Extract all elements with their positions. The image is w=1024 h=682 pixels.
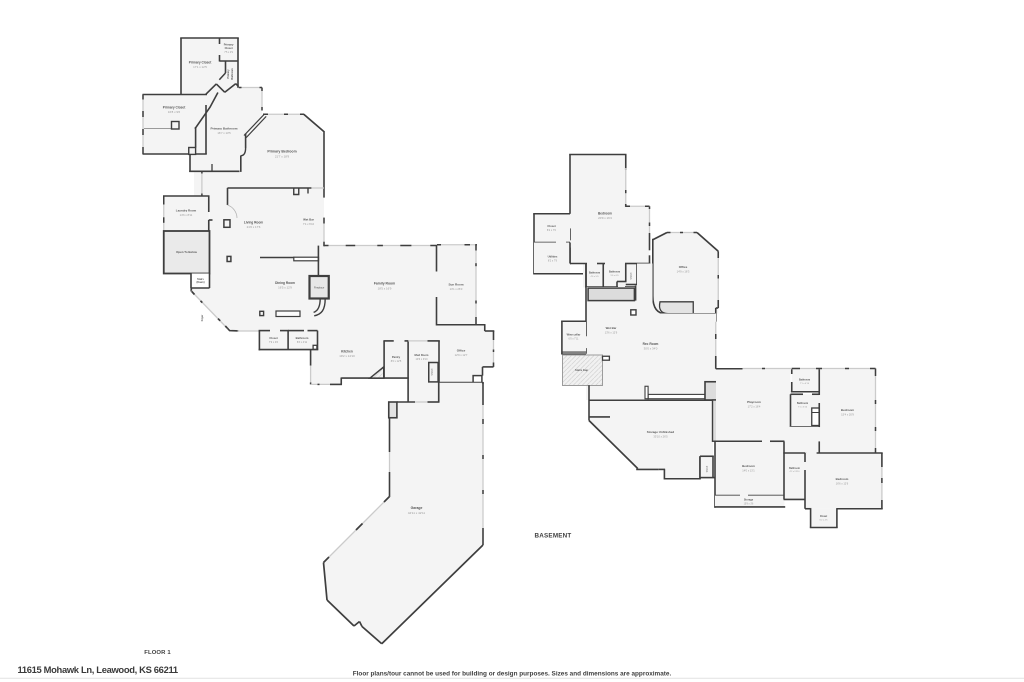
svg-text:7'4 x 6'10: 7'4 x 6'10 <box>303 222 315 226</box>
svg-text:Bathroom: Bathroom <box>797 402 808 405</box>
svg-text:Family Room: Family Room <box>374 282 395 286</box>
svg-text:Bedroom: Bedroom <box>841 408 855 412</box>
svg-text:44'11 x 42'11: 44'11 x 42'11 <box>408 511 426 515</box>
svg-text:21'7 x 18'9: 21'7 x 18'9 <box>275 154 290 158</box>
svg-text:7'1 x 4'10: 7'1 x 4'10 <box>800 383 810 385</box>
svg-text:Pantry: Pantry <box>392 355 401 359</box>
svg-text:11615 Mohawk Ln, Leawood, KS 6: 11615 Mohawk Ln, Leawood, KS 66211 <box>18 664 178 675</box>
svg-text:Bathroom: Bathroom <box>789 467 800 470</box>
svg-text:Bedroom: Bedroom <box>742 464 755 468</box>
svg-text:Floor plans/tour cannot be use: Floor plans/tour cannot be used for buil… <box>353 671 672 678</box>
svg-text:14'6 x 8'11: 14'6 x 8'11 <box>180 213 193 217</box>
svg-text:Wine cellar: Wine cellar <box>567 333 581 337</box>
svg-text:Living Room: Living Room <box>244 221 263 225</box>
svg-text:BASEMENT: BASEMENT <box>535 533 572 540</box>
svg-text:Bedroom: Bedroom <box>598 212 612 216</box>
svg-text:8'2 x 7'9: 8'2 x 7'9 <box>548 260 558 263</box>
svg-text:Dining Room: Dining Room <box>275 281 295 285</box>
svg-text:Bathroom: Bathroom <box>296 336 309 340</box>
svg-text:Wet Bar: Wet Bar <box>606 326 618 330</box>
svg-text:Office: Office <box>679 265 688 269</box>
svg-text:Primary: Primary <box>224 43 234 47</box>
svg-text:21'6 x 17'6: 21'6 x 17'6 <box>247 225 261 229</box>
svg-text:Primary Bedroom: Primary Bedroom <box>267 150 296 154</box>
svg-text:14'9 x 16'3: 14'9 x 16'3 <box>677 269 690 273</box>
svg-text:Rec Room: Rec Room <box>643 342 659 346</box>
svg-text:7'1 x 3'10: 7'1 x 3'10 <box>798 406 808 408</box>
svg-text:Kitchen: Kitchen <box>341 350 353 354</box>
svg-text:Closet: Closet <box>269 336 277 340</box>
svg-text:Closet: Closet <box>430 368 433 375</box>
svg-text:30'0 x 34'0: 30'0 x 34'0 <box>644 347 658 351</box>
svg-text:Bathroom: Bathroom <box>589 272 600 275</box>
svg-text:Sun Room: Sun Room <box>449 283 464 287</box>
svg-text:Playroom: Playroom <box>747 400 761 404</box>
svg-text:Bathroom: Bathroom <box>231 68 234 79</box>
svg-text:Garage: Garage <box>411 506 423 510</box>
svg-text:16'8 x 9'6: 16'8 x 9'6 <box>168 110 181 114</box>
svg-text:Bedroom: Bedroom <box>836 477 849 481</box>
svg-text:20'9 x 16'4: 20'9 x 16'4 <box>598 216 612 220</box>
svg-text:19'2 x 14'10: 19'2 x 14'10 <box>339 354 355 358</box>
svg-text:Stairs Gap: Stairs Gap <box>575 368 588 372</box>
svg-text:15'8 x 3'6: 15'8 x 3'6 <box>744 503 754 505</box>
svg-text:Office: Office <box>457 349 466 353</box>
svg-text:Storage: Storage <box>744 499 754 502</box>
svg-text:7'5 x 4'9: 7'5 x 4'9 <box>224 51 233 54</box>
svg-text:Laundry Room: Laundry Room <box>176 209 197 213</box>
svg-text:(Down): (Down) <box>196 281 204 284</box>
svg-text:4'2 x 13'10: 4'2 x 13'10 <box>790 471 801 473</box>
svg-text:8'0 x 12'5: 8'0 x 12'5 <box>391 360 402 363</box>
svg-text:Primary: Primary <box>227 69 230 79</box>
svg-text:Closet: Closet <box>225 46 233 50</box>
svg-text:Fireplace: Fireplace <box>314 286 325 289</box>
svg-text:10'6 x 9'10: 10'6 x 9'10 <box>416 358 429 361</box>
svg-text:FLOOR 1: FLOOR 1 <box>144 650 171 656</box>
svg-text:13'1 x 26'3: 13'1 x 26'3 <box>450 287 463 291</box>
svg-text:Mud Room: Mud Room <box>415 353 429 357</box>
svg-text:4'6 x 5'0: 4'6 x 5'0 <box>590 276 599 278</box>
svg-text:Bathroom: Bathroom <box>799 379 810 382</box>
svg-text:35'10 x 26'5: 35'10 x 26'5 <box>653 434 668 438</box>
svg-text:13'6 x 12'9: 13'6 x 12'9 <box>605 330 618 334</box>
svg-text:Storage Unfinished: Storage Unfinished <box>647 430 675 434</box>
svg-text:Foyer: Foyer <box>201 315 204 322</box>
svg-text:18'5 x 16'9: 18'5 x 16'9 <box>378 286 392 290</box>
svg-text:Utilities: Utilities <box>548 255 558 259</box>
svg-text:6'0 x 7'11: 6'0 x 7'11 <box>569 338 580 341</box>
svg-text:Primary Bathroom: Primary Bathroom <box>211 127 238 131</box>
svg-text:6'2 x 4'5: 6'2 x 4'5 <box>819 519 828 521</box>
svg-text:16'7 x 13'5: 16'7 x 13'5 <box>217 131 231 135</box>
svg-text:Open To Below: Open To Below <box>176 250 198 254</box>
svg-text:Primary Closet: Primary Closet <box>189 61 212 65</box>
svg-text:Wet Bar: Wet Bar <box>303 218 315 222</box>
svg-text:17'2 x 16'4: 17'2 x 16'4 <box>748 404 761 408</box>
svg-text:Closet: Closet <box>547 224 555 228</box>
svg-text:17'1 x 12'5: 17'1 x 12'5 <box>193 65 207 69</box>
svg-text:Bathroom: Bathroom <box>609 271 620 274</box>
svg-text:Primary Closet: Primary Closet <box>163 106 186 110</box>
svg-text:Closet: Closet <box>630 272 633 279</box>
svg-text:14'0 x 13'1: 14'0 x 13'1 <box>742 468 755 472</box>
svg-text:Closet: Closet <box>706 466 709 473</box>
svg-text:12'9 x 12'7: 12'9 x 12'7 <box>455 353 468 357</box>
svg-text:16'6 x 12'6: 16'6 x 12'6 <box>836 481 849 485</box>
svg-text:8'2 x 7'0: 8'2 x 7'0 <box>547 229 557 232</box>
svg-text:5'6 x 6'0: 5'6 x 6'0 <box>610 275 619 277</box>
svg-text:16'5 x 12'9: 16'5 x 12'9 <box>278 286 292 290</box>
svg-text:8'3 x 4'11: 8'3 x 4'11 <box>297 341 308 344</box>
svg-text:15'4 x 20'9: 15'4 x 20'9 <box>841 412 854 416</box>
svg-text:7'9 x 4'6: 7'9 x 4'6 <box>269 341 279 344</box>
svg-text:Closet: Closet <box>820 515 828 518</box>
